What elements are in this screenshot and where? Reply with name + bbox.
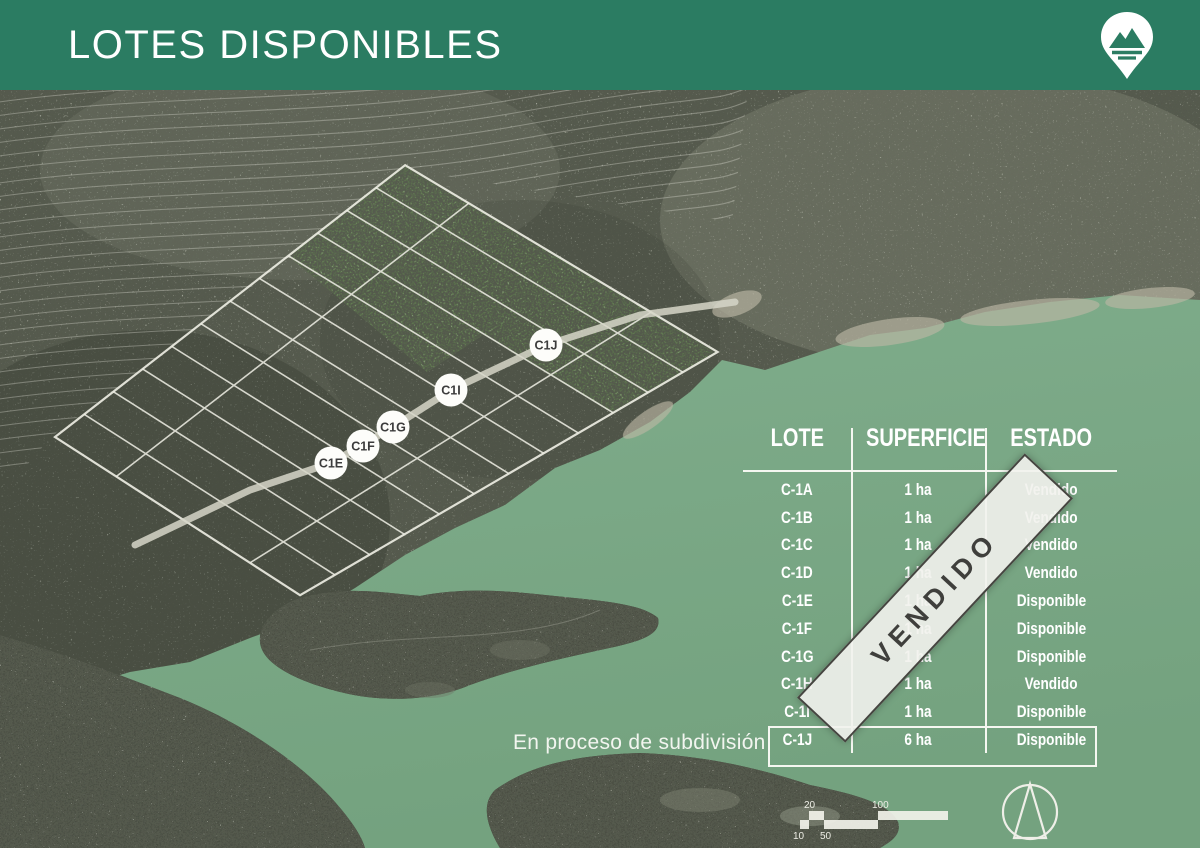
- svg-text:C1I: C1I: [441, 384, 460, 398]
- scale-label-10: 10: [793, 831, 805, 842]
- header-underline: [743, 470, 1117, 472]
- subdivision-caption: En proceso de subdivisión: [513, 731, 766, 755]
- lot-marker-c1f: C1F: [347, 430, 380, 463]
- lot-marker-c1e: C1E: [315, 447, 348, 480]
- lot-marker-c1g: C1G: [377, 411, 410, 444]
- svg-text:C1E: C1E: [319, 457, 343, 471]
- status-value: Disponible: [985, 647, 1117, 667]
- table-header-row: LOTE SUPERFICIE ESTADO: [743, 418, 1117, 458]
- column-header-superficie: SUPERFICIE: [851, 424, 985, 453]
- header-bar: LOTES DISPONIBLES: [0, 0, 1200, 90]
- status-value: Disponible: [985, 591, 1117, 611]
- highlight-box-c1j: [768, 726, 1097, 767]
- svg-text:C1F: C1F: [351, 440, 375, 454]
- scale-label-50: 50: [820, 831, 832, 842]
- svg-text:C1J: C1J: [535, 339, 558, 353]
- column-header-estado: ESTADO: [985, 424, 1117, 453]
- scale-label-20: 20: [804, 800, 816, 811]
- lot-marker-c1j: C1J: [530, 329, 563, 362]
- status-value: Disponible: [985, 619, 1117, 639]
- scale-label-100: 100: [872, 800, 889, 811]
- page-title: LOTES DISPONIBLES: [68, 23, 503, 68]
- column-header-lote: LOTE: [743, 424, 851, 453]
- svg-text:C1G: C1G: [380, 421, 406, 435]
- logo-mountain-pin-icon: [1092, 7, 1162, 85]
- status-value: Disponible: [985, 702, 1117, 722]
- table-row: C-1I 1 ha Disponible: [743, 698, 1117, 726]
- status-value: Vendido: [985, 674, 1117, 694]
- lot-marker-c1i: C1I: [435, 374, 468, 407]
- page: LOTES DISPONIBLES: [0, 0, 1200, 848]
